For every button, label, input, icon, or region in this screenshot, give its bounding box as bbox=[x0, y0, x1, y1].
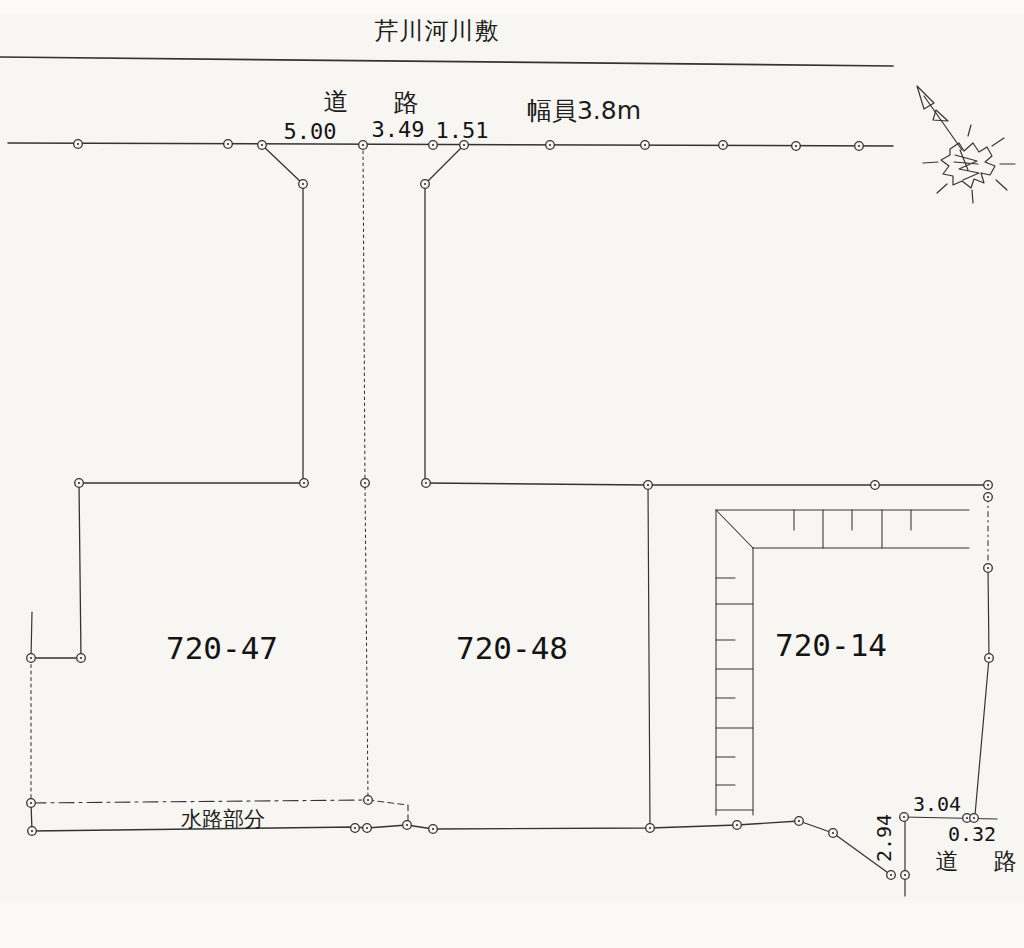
dimension-2-94: 2.94 bbox=[872, 814, 896, 862]
dimension-1-51: 1.51 bbox=[436, 118, 489, 143]
waterway-label: 水路部分 bbox=[181, 807, 265, 831]
survey-point bbox=[984, 481, 993, 490]
dimension-3-04: 3.04 bbox=[913, 792, 961, 816]
cadastral-survey-map: 芹川河川敷 道 路 幅員3.8m 5.00 3.49 1.51 720-47 7… bbox=[0, 0, 1024, 948]
survey-point bbox=[795, 817, 804, 826]
bottom-road-label-left: 道 bbox=[936, 848, 959, 874]
top-road-label-right: 路 bbox=[394, 88, 419, 117]
parcel-number-720-48: 720-48 bbox=[456, 630, 568, 666]
survey-point bbox=[422, 479, 431, 488]
survey-point bbox=[27, 654, 36, 663]
survey-drawing: 芹川河川敷 道 路 幅員3.8m 5.00 3.49 1.51 720-47 7… bbox=[0, 0, 1024, 948]
survey-point bbox=[871, 481, 880, 490]
dimension-3-49: 3.49 bbox=[372, 117, 425, 142]
survey-point bbox=[75, 479, 84, 488]
survey-point bbox=[27, 799, 36, 808]
paper-background bbox=[0, 0, 1024, 948]
road-width-label: 幅員3.8m bbox=[527, 96, 641, 125]
survey-point bbox=[641, 141, 650, 150]
top-road-label-left: 道 bbox=[324, 87, 349, 116]
survey-point bbox=[224, 140, 233, 149]
scan-margin-bottom bbox=[0, 900, 1024, 948]
survey-point bbox=[429, 825, 438, 834]
survey-point bbox=[351, 824, 360, 833]
survey-point bbox=[28, 827, 37, 836]
survey-point bbox=[361, 479, 370, 488]
survey-point bbox=[985, 654, 994, 663]
survey-point bbox=[644, 481, 653, 490]
survey-point bbox=[984, 493, 993, 502]
parcel-number-720-14: 720-14 bbox=[775, 627, 887, 663]
survey-point bbox=[984, 564, 993, 573]
survey-point bbox=[359, 141, 368, 150]
survey-point bbox=[900, 813, 909, 822]
survey-point bbox=[829, 829, 838, 838]
survey-point bbox=[646, 824, 655, 833]
survey-point bbox=[77, 654, 86, 663]
survey-point bbox=[299, 180, 308, 189]
parcel-number-720-47: 720-47 bbox=[166, 630, 278, 666]
survey-point bbox=[74, 140, 83, 149]
survey-point bbox=[733, 821, 742, 830]
bottom-road-label-right: 路 bbox=[994, 848, 1017, 874]
survey-point bbox=[421, 180, 430, 189]
survey-point bbox=[855, 142, 864, 151]
dimension-0-32: 0.32 bbox=[948, 822, 996, 846]
survey-point bbox=[901, 871, 910, 880]
survey-point bbox=[546, 141, 555, 150]
survey-point bbox=[363, 824, 372, 833]
survey-point bbox=[258, 141, 267, 150]
survey-point bbox=[792, 142, 801, 151]
survey-point bbox=[970, 814, 979, 823]
survey-point bbox=[719, 141, 728, 150]
river-title: 芹川河川敷 bbox=[375, 17, 500, 45]
survey-point bbox=[403, 821, 412, 830]
scan-margin-top bbox=[0, 0, 1024, 14]
survey-point bbox=[300, 479, 309, 488]
dimension-5-00: 5.00 bbox=[284, 119, 337, 144]
survey-point bbox=[364, 796, 373, 805]
survey-point bbox=[887, 871, 896, 880]
